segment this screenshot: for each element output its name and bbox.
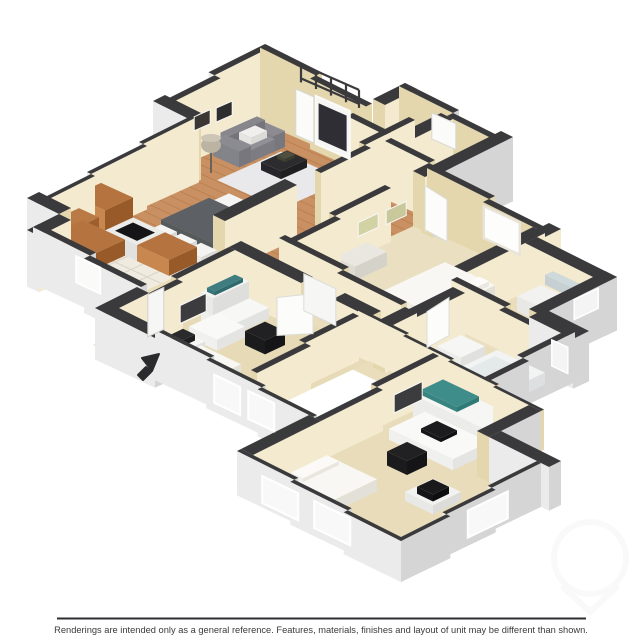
svg-text:Renderings are intended only a: Renderings are intended only as a genera… <box>54 625 588 635</box>
